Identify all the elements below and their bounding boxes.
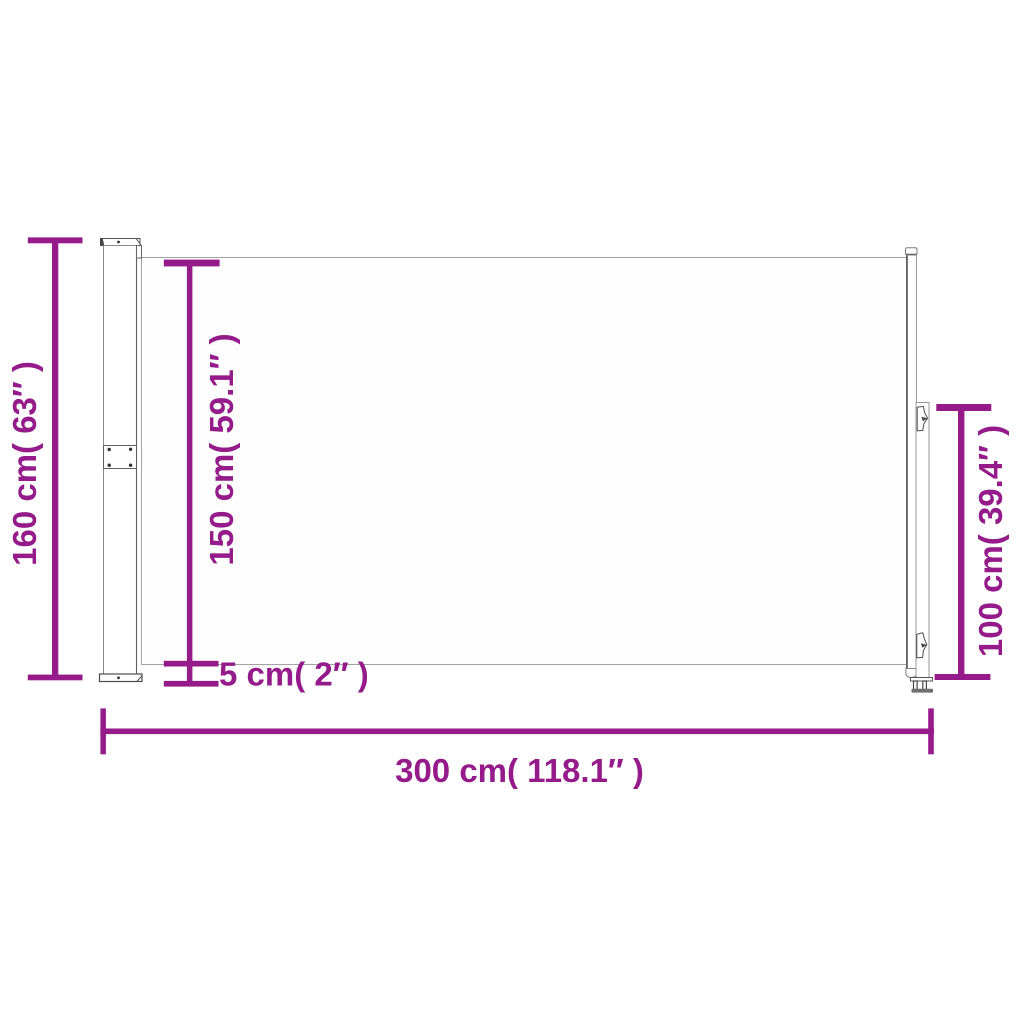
svg-text:300 cm( 118.1″ ): 300 cm( 118.1″ ) xyxy=(395,752,644,789)
svg-text:160 cm( 63″ ): 160 cm( 63″ ) xyxy=(6,361,43,566)
svg-text:100 cm( 39.4″ ): 100 cm( 39.4″ ) xyxy=(972,425,1009,657)
svg-text:150 cm( 59.1″ ): 150 cm( 59.1″ ) xyxy=(203,333,240,565)
svg-text:5 cm( 2″ ): 5 cm( 2″ ) xyxy=(219,656,369,693)
